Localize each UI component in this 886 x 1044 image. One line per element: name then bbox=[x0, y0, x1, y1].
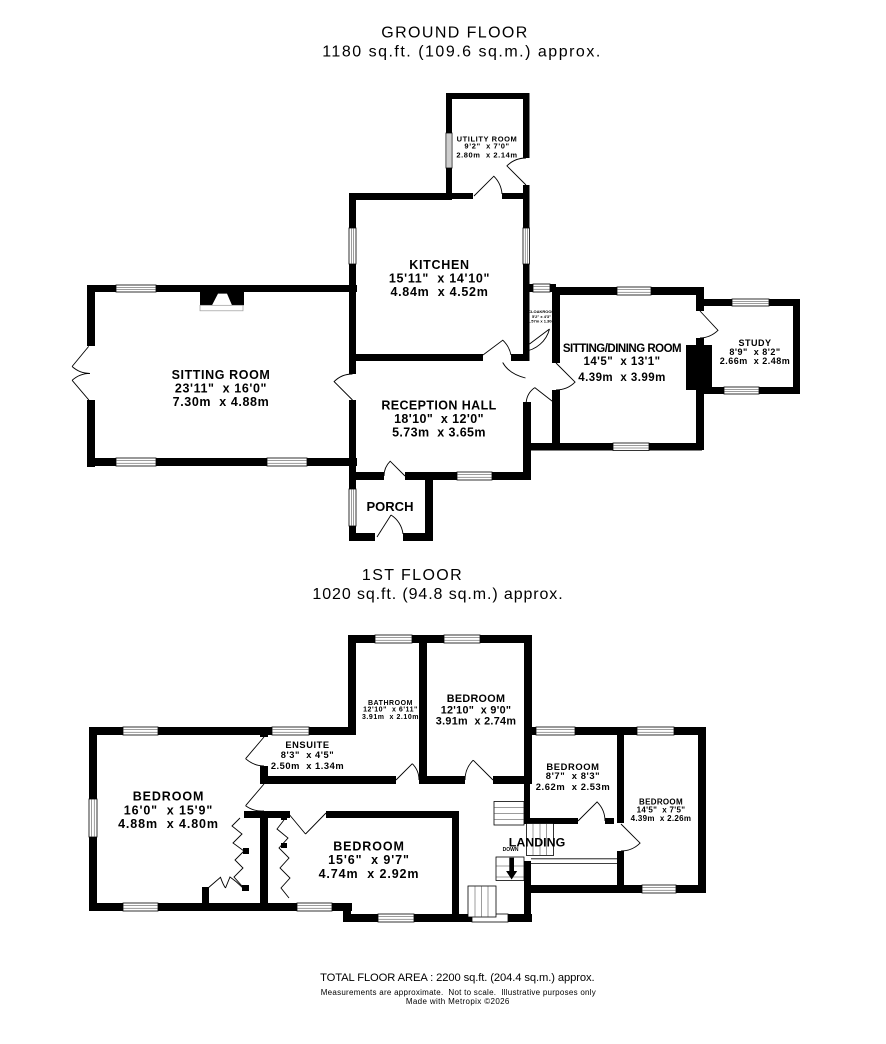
svg-text:UTILITY ROOM9’2" x 7'0"2.80m: UTILITY ROOM9’2" x 7'0"2.80m x 2.14m bbox=[456, 134, 517, 159]
svg-text:SITTING ROOM23'11" x 16'0"7.3: SITTING ROOM23'11" x 16'0"7.30m x 4.88m bbox=[172, 368, 271, 409]
svg-text:BEDROOM12'10" x 9'0"3.91m x: BEDROOM12'10" x 9'0"3.91m x 2.74m bbox=[436, 693, 516, 728]
svg-text:PORCH: PORCH bbox=[367, 499, 414, 514]
svg-text:Measurements are approximate.: Measurements are approximate. Not to sca… bbox=[321, 988, 596, 997]
svg-text:1180 sq.ft. (109.6 sq.m.) appr: 1180 sq.ft. (109.6 sq.m.) approx. bbox=[322, 44, 602, 61]
svg-text:1020 sq.ft. (94.8 sq.m.) appro: 1020 sq.ft. (94.8 sq.m.) approx. bbox=[312, 586, 563, 603]
svg-text:Made with Metropix ©2026: Made with Metropix ©2026 bbox=[406, 997, 510, 1006]
svg-text:DOWN: DOWN bbox=[503, 847, 519, 853]
svg-text:BATHROOM12'10" x 6'11"3.91m: BATHROOM12'10" x 6'11"3.91m x 2.10m bbox=[362, 700, 419, 721]
svg-text:RECEPTION HALL18'10" x 12'0"5: RECEPTION HALL18'10" x 12'0"5.73m x 3.65… bbox=[381, 398, 496, 439]
svg-text:BEDROOM16'0" x 15'9"4.88m x: BEDROOM16'0" x 15'9"4.88m x 4.80m bbox=[118, 789, 219, 831]
svg-text:BEDROOM8'7" x 8'3"2.62m x 2.: BEDROOM8'7" x 8'3"2.62m x 2.53m bbox=[536, 761, 611, 792]
svg-text:BEDROOM15'6" x 9'7"4.74m x 2: BEDROOM15'6" x 9'7"4.74m x 2.92m bbox=[319, 840, 420, 882]
svg-text:1ST FLOOR: 1ST FLOOR bbox=[362, 567, 463, 584]
svg-text:TOTAL FLOOR AREA : 2200 sq.ft.: TOTAL FLOOR AREA : 2200 sq.ft. (204.4 sq… bbox=[320, 972, 594, 984]
svg-text:GROUND FLOOR: GROUND FLOOR bbox=[381, 25, 528, 42]
svg-text:BEDROOM14'5" x 7'5"4.39m x 2: BEDROOM14'5" x 7'5"4.39m x 2.26m bbox=[631, 798, 692, 823]
